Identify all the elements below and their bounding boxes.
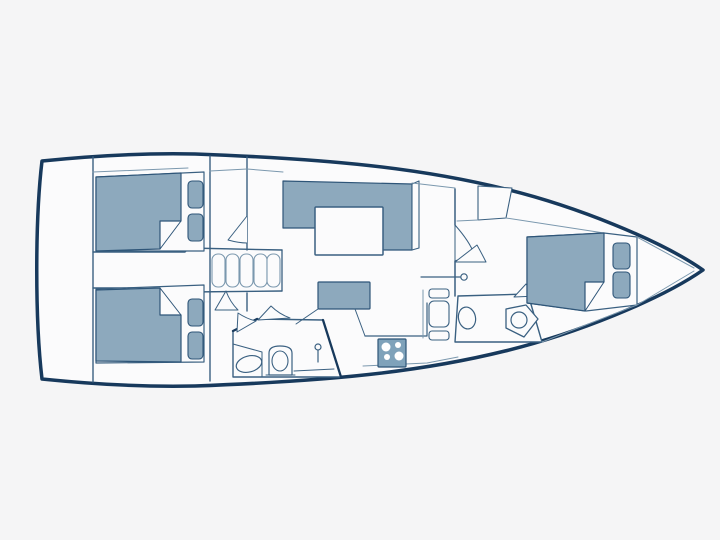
stove-burner-2	[395, 342, 401, 348]
stove-burner-4	[395, 352, 404, 361]
fwd-locker	[478, 186, 512, 220]
aft-port-pillow-1	[188, 181, 203, 208]
fwd-head-toilet-bowl	[511, 312, 527, 328]
companionway-step-3	[240, 254, 253, 287]
companionway-step-4	[254, 254, 267, 287]
galley-drawer-low	[429, 331, 449, 340]
aft-stbd-pillow-1	[188, 299, 203, 326]
fwd-pillow-2	[613, 272, 630, 298]
galley-drawer-mid	[429, 301, 449, 327]
salon-bench	[318, 282, 370, 309]
stove-burner-3	[384, 354, 390, 360]
stove-burner-1	[382, 343, 391, 352]
companionway-step-5	[267, 254, 280, 287]
salon-settee-backrest	[412, 181, 419, 250]
aft-head-shower-head	[315, 344, 321, 350]
galley-drawer-top	[429, 289, 449, 298]
companionway-step-1	[212, 254, 225, 287]
salon-table	[315, 207, 383, 255]
companionway-step-2	[226, 254, 239, 287]
floorplan-svg	[0, 0, 720, 540]
galley-door-knob	[461, 274, 467, 280]
aft-port-pillow-2	[188, 214, 203, 241]
aft-head-toilet-bowl	[272, 351, 288, 371]
aft-stbd-pillow-2	[188, 332, 203, 359]
fwd-pillow-1	[613, 243, 630, 269]
floorplan-stage	[0, 0, 720, 540]
